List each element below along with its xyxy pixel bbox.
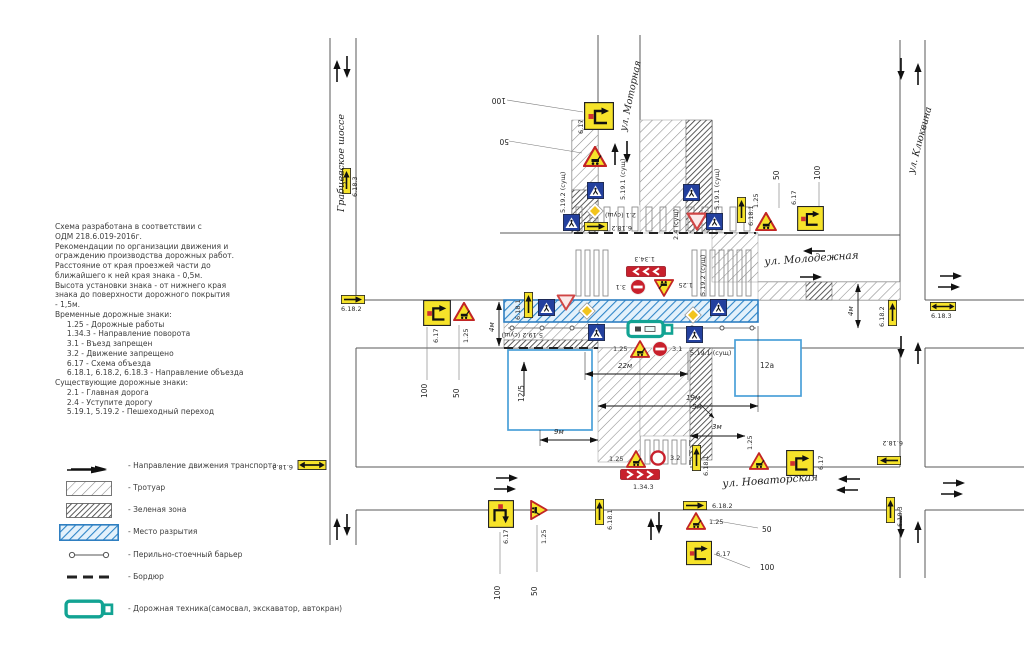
sign-label-6.18.1: 6.18.1 [748, 205, 755, 226]
note-line: 1.25 - Дорожные работы [55, 320, 327, 330]
sign-6.17-icon [798, 207, 824, 231]
sign-5.19-icon [538, 299, 554, 315]
sign-label-6.18.2: 6.18.2 [611, 225, 632, 232]
note-line: Временные дорожные знаки: [55, 310, 327, 320]
sign-label-5.19.2: 5.19.2 (сущ) [560, 172, 567, 213]
distance-label-50: 50 [773, 170, 781, 180]
sign-1.25-icon [687, 513, 705, 529]
dim-label-9m: 9м [554, 429, 564, 436]
sign-6.17-icon [424, 301, 451, 326]
post-rail-barrier-icon [58, 550, 120, 560]
building-label-12a: 12а [760, 362, 774, 370]
sign-label-6.18.1: 6.18.1 [515, 299, 522, 320]
green-zone-hatch-icon [58, 503, 120, 518]
note-line: 3.1 - Въезд запрещен [55, 339, 327, 349]
sign-label-2.4: 2.4 (сущ) [673, 209, 680, 240]
sign-label-6.18.2: 6.18.2 [879, 306, 886, 327]
sign-label-1.25: 1.25 [609, 456, 623, 463]
sidewalk-hatch-icon [58, 481, 120, 496]
legend: - Направление движения транспорта - Трот… [58, 458, 378, 621]
sign-5.19-icon [683, 184, 699, 200]
sign-label-1.25: 1.25 [463, 329, 470, 343]
sign-6.17-icon [489, 501, 514, 528]
sign-label-3.1: 3.1 [616, 284, 626, 291]
distance-label-100: 100 [814, 166, 822, 180]
legend-row: - Место разрытия [58, 524, 378, 541]
sign-label-1.34.3: 1.34.3 [633, 484, 654, 491]
sign-label-1.25: 1.25 [613, 346, 627, 353]
note-line: ближайшего к ней края знака - 0,5м. [55, 271, 327, 281]
distance-label-50: 50 [762, 526, 772, 534]
excavation-area-icon [58, 524, 120, 541]
sign-6.18.3-icon [886, 497, 894, 522]
sign-6.17-icon [585, 103, 614, 130]
sign-6.18.2-icon [877, 456, 900, 464]
sign-label-6.18.2: 6.18.2 [341, 306, 362, 313]
distance-label-50: 50 [531, 586, 539, 596]
legend-label: - Бордюр [128, 573, 164, 582]
sign-6.18.1-icon [692, 445, 700, 470]
sign-label-6.18.2: 6.18.2 [882, 440, 903, 447]
note-line: Схема разработана в соответствии с [55, 222, 327, 232]
sign-3.2-icon [651, 451, 664, 464]
sign-5.19-icon [563, 214, 579, 230]
road-machine-icon [628, 322, 672, 337]
legend-row: - Зеленая зона [58, 502, 378, 518]
note-line: 6.17 - Схема объезда [55, 359, 327, 369]
sign-6.18.1-icon [524, 292, 532, 317]
sign-6.18.2-icon [888, 300, 896, 325]
sign-1.25-icon [454, 303, 474, 320]
legend-row: - Дорожная техника(самосвал, экскаватор,… [58, 597, 378, 621]
sign-5.19-icon [686, 326, 702, 342]
sign-6.18.2-icon [341, 295, 364, 303]
sign-label-5.19.2: 5.19.2 (сущ) [502, 332, 543, 339]
scheme-notes: Схема разработана в соответствии с ОДМ 2… [55, 222, 327, 417]
note-line: 5.19.1, 5.19.2 - Пешеходный переход [55, 407, 327, 417]
sign-1.34.3-icon [626, 266, 665, 276]
sign-label-2.1: 2.1 (сущ) [605, 212, 636, 219]
sign-label-1.25: 1.25 [679, 282, 693, 289]
sign-label-1.25: 1.25 [709, 519, 723, 526]
sign-1.25-icon [531, 501, 547, 519]
note-line: ограждению производства дорожных работ. [55, 251, 327, 261]
sign-label-6.18.1: 6.18.1 [607, 509, 614, 530]
distance-label-100: 100 [492, 97, 506, 105]
sign-6.18.2-icon [683, 501, 706, 509]
sign-label-6.18.2: 6.18.2 [712, 503, 733, 510]
sign-label-6.17: 6.17 [433, 329, 440, 343]
sign-6.18.2-icon [584, 222, 607, 230]
sign-label-5.19.1: 5.19.1 (сущ) [714, 169, 721, 210]
note-line: Высота установки знака - от нижнего края [55, 281, 327, 291]
sign-label-1.25: 1.25 [753, 194, 760, 208]
legend-label: - Зеленая зона [128, 506, 186, 515]
sign-label-6.17: 6.17 [791, 191, 798, 205]
dim-label-4m: 4м [848, 306, 855, 316]
note-line: 6.18.1, 6.18.2, 6.18.3 - Направление объ… [55, 368, 327, 378]
note-line: знака до поверхности дорожного покрытия [55, 290, 327, 300]
traffic-direction-arrows-icon [58, 458, 120, 474]
sign-5.19-icon [587, 182, 603, 198]
note-line: - 1,5м. [55, 300, 327, 310]
sign-label-1.25: 1.25 [541, 530, 548, 544]
sign-6.18.1-icon [737, 197, 745, 222]
legend-row: - Бордюр [58, 569, 378, 585]
distance-label-50: 50 [453, 388, 461, 398]
sign-label-6.18.1: 6.18.1 [703, 455, 710, 476]
note-line: Существующие дорожные знаки: [55, 378, 327, 388]
sign-5.19-icon [710, 299, 726, 315]
sign-1.25-icon [750, 453, 768, 469]
sign-label-5.19.2: 5.19.2 (сущ) [700, 255, 707, 296]
sign-3.1-icon [653, 342, 668, 357]
road-works-scheme: Схема разработана в соответствии с ОДМ 2… [0, 0, 1024, 663]
legend-label: - Дорожная техника(самосвал, экскаватор,… [128, 605, 342, 614]
dim-label-19m: 19м [686, 395, 700, 402]
sign-label-1.25: 1.25 [747, 436, 754, 450]
dim-label-22m: 22м [618, 363, 632, 370]
dim-label-3m: 3м [712, 424, 722, 431]
sign-label-6.17: 6.17 [716, 551, 730, 558]
legend-label: - Перильно-стоечный барьер [128, 551, 242, 560]
sign-label-6.18.3: 6.18.3 [352, 176, 359, 197]
sign-6.18.3-icon [930, 302, 955, 310]
sign-6.17-icon [687, 541, 712, 564]
legend-label: - Направление движения транспорта [128, 462, 277, 471]
sign-1.34.3-icon [620, 469, 659, 479]
distance-label-100: 100 [760, 564, 774, 572]
sign-label-3.1: 3.1 [672, 346, 682, 353]
dim-label-5m: 5м [692, 404, 702, 411]
sign-label-6.17: 6.17 [503, 530, 510, 544]
dim-label-4m: 4м [489, 322, 496, 332]
sign-label-5.19.1: 5.19.1 (сущ) [690, 350, 731, 357]
sign-label-6.17: 6.17 [578, 120, 585, 134]
note-line: 2.4 - Уступите дорогу [55, 398, 327, 408]
note-line: 3.2 - Движение запрещено [55, 349, 327, 359]
legend-label: - Тротуар [128, 484, 165, 493]
distance-label-100: 100 [421, 384, 429, 398]
sign-1.25-icon [756, 213, 776, 230]
note-line: ОДМ 218.6.019-2016г. [55, 232, 327, 242]
legend-row: - Тротуар [58, 480, 378, 496]
sign-5.19-icon [706, 213, 722, 229]
sign-3.1-icon [631, 280, 646, 295]
sign-1.25-icon [655, 280, 673, 296]
sign-label-6.18.3: 6.18.3 [897, 506, 904, 527]
sign-label-6.17: 6.17 [818, 456, 825, 470]
note-line: Расстояние от края проезжей части до [55, 261, 327, 271]
sign-6.18.1-icon [595, 499, 603, 524]
street-label-grabtsevskoe: Грабцевское шоссе [336, 114, 347, 212]
kerb-icon [58, 574, 120, 580]
sign-label-6.18.3: 6.18.3 [931, 313, 952, 320]
legend-label: - Место разрытия [128, 528, 197, 537]
note-line: 2.1 - Главная дорога [55, 388, 327, 398]
building-label-12-5: 12/5 [518, 385, 526, 402]
sign-label-3.2: 3.2 [670, 455, 680, 462]
legend-row: - Перильно-стоечный барьер [58, 547, 378, 563]
road-machine-icon [58, 597, 120, 621]
note-line: 1.34.3 - Направление поворота [55, 329, 327, 339]
sign-label-6.18.3: 6.18.3 [272, 464, 293, 471]
sign-label-5.19.1: 5.19.1 (сущ) [620, 159, 627, 200]
distance-label-100: 100 [494, 586, 502, 600]
sign-label-1.34.3: 1.34.3 [634, 256, 655, 263]
sign-5.19-icon [588, 324, 604, 340]
distance-label-50: 50 [499, 138, 509, 146]
legend-row: - Направление движения транспорта [58, 458, 378, 474]
note-line: Рекомендации по организации движения и [55, 242, 327, 252]
